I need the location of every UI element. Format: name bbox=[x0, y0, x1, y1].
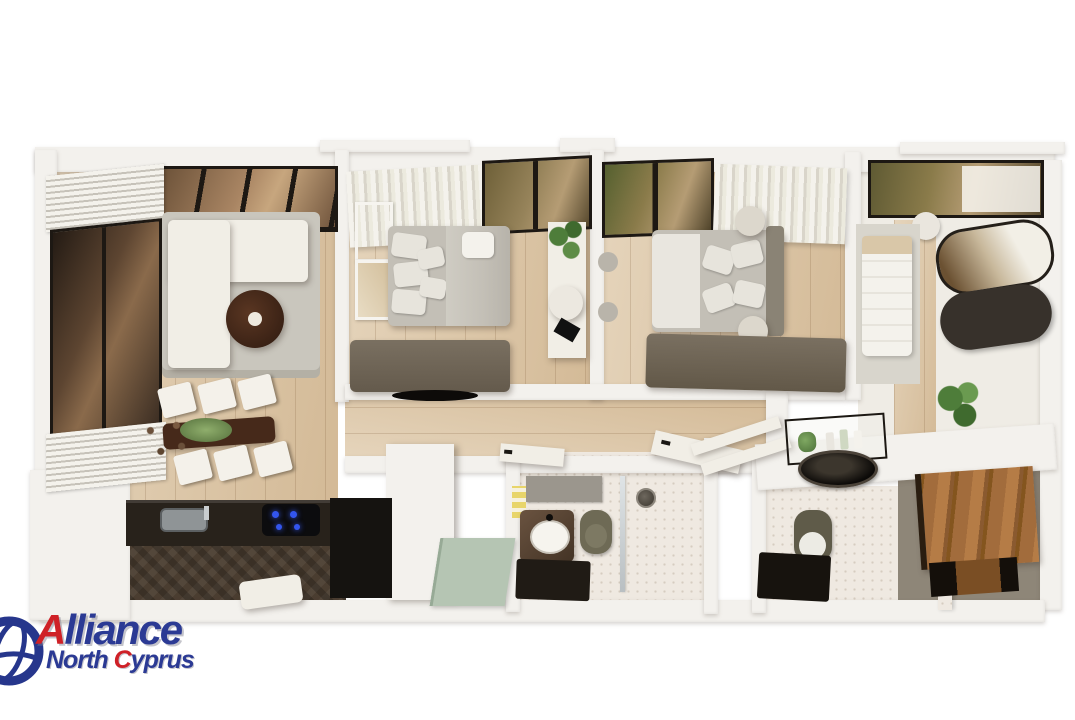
hob-burner-light bbox=[294, 524, 300, 530]
coffee-table-decor bbox=[248, 312, 262, 326]
bed-pillow-band bbox=[862, 236, 912, 254]
outer-wall-top-step2 bbox=[560, 138, 615, 152]
bedroom2-bed bbox=[652, 230, 784, 332]
flower-arrangement bbox=[906, 282, 952, 324]
bed-headboard bbox=[766, 226, 784, 336]
bed-mattress bbox=[652, 234, 700, 328]
outer-wall-bottom-left bbox=[30, 470, 130, 620]
bathroom1-mirror bbox=[526, 476, 602, 502]
living-panoramic-window bbox=[50, 218, 162, 438]
kitchen-faucet bbox=[204, 506, 209, 520]
bath-mat bbox=[515, 559, 590, 602]
bed-pillow bbox=[730, 239, 765, 270]
shower-glass-panel bbox=[620, 476, 625, 592]
toilet-lid bbox=[585, 524, 607, 548]
bedroom1-bed bbox=[388, 226, 510, 326]
logo-word-cyprus-rest: yprus bbox=[131, 646, 194, 674]
cosmetic-bottle bbox=[826, 432, 835, 451]
ensuite-low-counter bbox=[757, 552, 831, 602]
pouf bbox=[735, 206, 765, 236]
entrance-mat bbox=[430, 538, 516, 606]
kitchen-floor bbox=[128, 544, 346, 602]
wardrobe-cabinet bbox=[915, 466, 1039, 570]
bed-towel-tray bbox=[462, 232, 494, 258]
logo-word-north-cyprus: North Cyprus bbox=[46, 646, 194, 675]
decorative-branches bbox=[140, 415, 192, 467]
outer-wall-top-step3 bbox=[900, 142, 1065, 154]
bedroom1-dresser-tv-unit bbox=[350, 340, 510, 392]
bed-pillow bbox=[416, 246, 446, 271]
tv-base bbox=[392, 390, 478, 401]
bed-pillow bbox=[732, 279, 766, 309]
cosmetic-bottle bbox=[839, 429, 848, 450]
outer-wall-bottom bbox=[40, 600, 1045, 622]
hob-burner-light bbox=[290, 511, 297, 518]
toilet bbox=[580, 510, 612, 554]
side-stool bbox=[598, 302, 618, 322]
bed-pillow bbox=[418, 276, 447, 300]
bedroom3-sheer-curtain bbox=[962, 166, 1040, 212]
cosmetic-bottle bbox=[853, 430, 862, 449]
bedroom3-bed bbox=[862, 236, 912, 356]
aloe-plant bbox=[797, 431, 816, 452]
logo-letter-c: C bbox=[114, 646, 131, 674]
hob-burner-light bbox=[276, 524, 282, 530]
round-countertop-sink bbox=[798, 450, 878, 488]
shower-head bbox=[636, 488, 656, 508]
bedroom2-window bbox=[602, 158, 714, 238]
logo-word-north: North bbox=[46, 646, 114, 674]
door-handle bbox=[504, 450, 512, 455]
kitchen-sink bbox=[160, 508, 208, 532]
bedroom2-dresser bbox=[645, 333, 846, 392]
basin-faucet bbox=[546, 514, 553, 521]
wardrobe-lower-drawers bbox=[929, 557, 1019, 597]
vanity-stool bbox=[549, 286, 583, 320]
kitchen-tall-unit-black bbox=[330, 498, 392, 598]
side-stool bbox=[598, 252, 618, 272]
potted-plant bbox=[546, 218, 588, 264]
sofa-side-section bbox=[168, 220, 230, 368]
door-handle bbox=[661, 440, 671, 446]
apartment-3d-floorplan: Alliance North Cyprus bbox=[0, 0, 1075, 720]
wash-basin bbox=[530, 520, 570, 554]
hob-burner-light bbox=[272, 511, 279, 518]
floor-plant bbox=[930, 376, 988, 432]
induction-hob bbox=[262, 504, 320, 536]
